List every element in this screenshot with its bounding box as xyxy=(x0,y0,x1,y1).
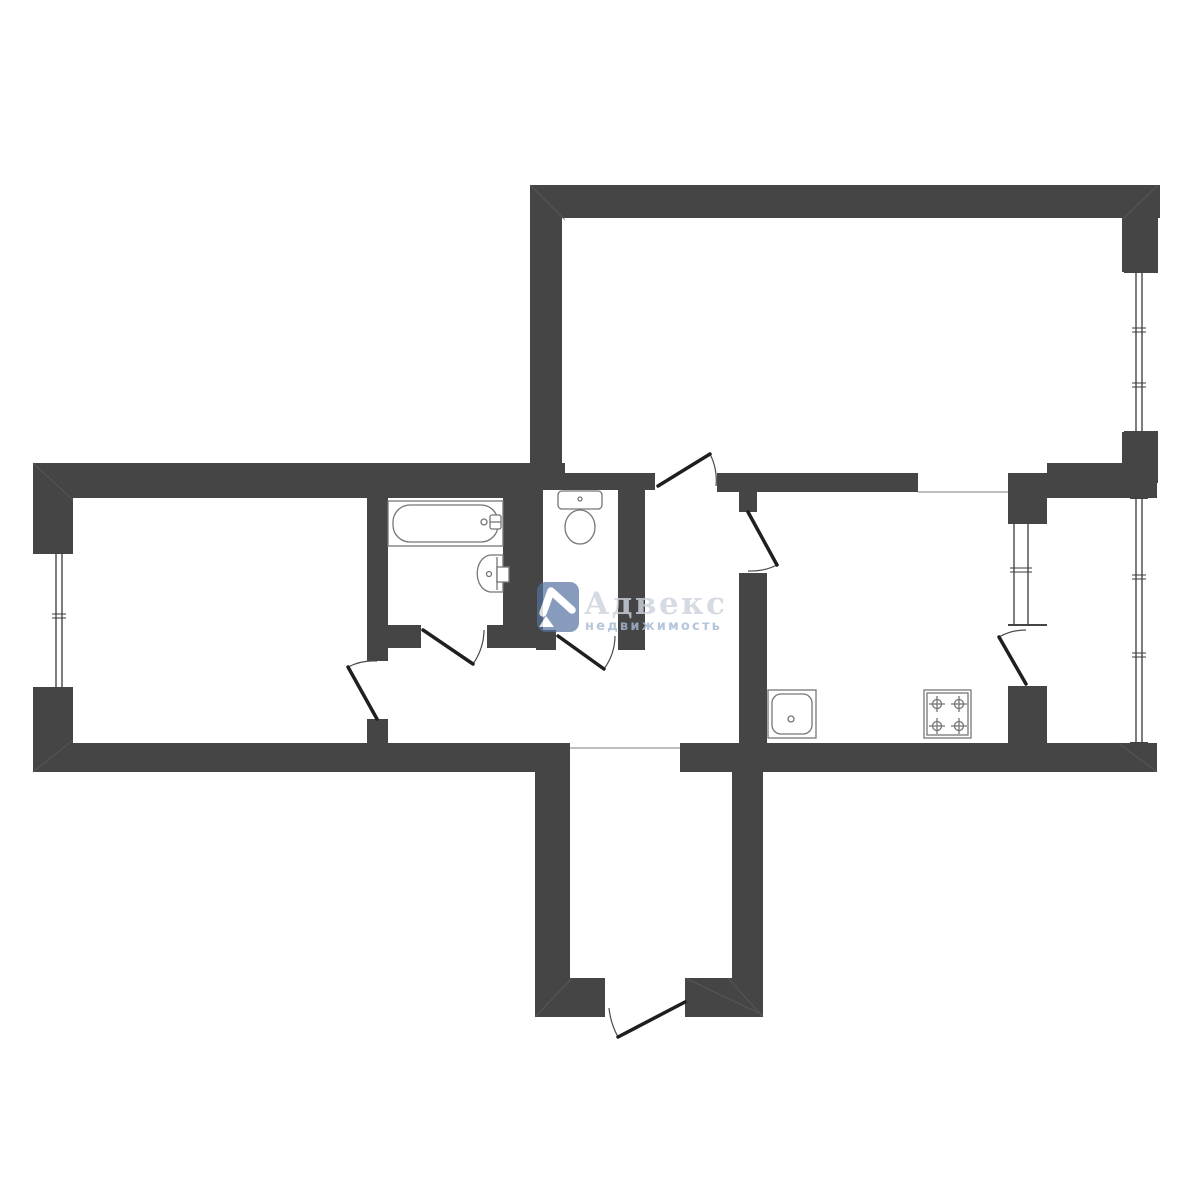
living-room-window-opening xyxy=(1124,272,1158,432)
bathroom-bottom-wall-right xyxy=(487,625,503,648)
bedroom-right-wall-lower xyxy=(367,719,388,743)
watermark-brand: Адвекс xyxy=(584,586,727,622)
left-wing-bottom-wall xyxy=(33,743,570,772)
kitchen-sink-detail xyxy=(788,716,794,722)
bathroom-sink-outline xyxy=(497,567,509,582)
kitchen-sink-outline xyxy=(772,694,812,734)
living-room-right-wall-above-window xyxy=(1122,185,1158,272)
left-wing-top-wall xyxy=(33,463,543,498)
kitchen-balcony-bottom-wall xyxy=(680,743,1157,772)
bathroom-bottom-wall-left xyxy=(388,625,421,648)
bedroom-window-opening xyxy=(33,553,73,688)
bedroom-window xyxy=(33,553,73,688)
living-room-left-wall xyxy=(530,185,562,490)
bathroom-sink-detail xyxy=(487,572,492,577)
kitchen-window xyxy=(1008,523,1047,625)
bathtub xyxy=(388,501,503,546)
stove xyxy=(924,690,971,738)
balcony-window-opening xyxy=(1130,498,1148,743)
wc-bottom-wall-left xyxy=(536,630,556,650)
bedroom-left-wall-above-window xyxy=(33,463,73,553)
kitchen-right-wall-bottom-block xyxy=(1008,686,1047,743)
bedroom-right-wall-upper xyxy=(367,494,388,661)
living-room-bottom-wall-left xyxy=(562,473,655,490)
kitchen-right-wall-top-block xyxy=(1008,473,1047,523)
kitchen-left-wall-lower xyxy=(739,573,767,743)
living-room-top-wall xyxy=(530,185,1160,218)
vestibule-bottom-wall-left xyxy=(535,978,605,1017)
kitchen-door-post xyxy=(739,473,757,512)
watermark: Адвекс недвижимость xyxy=(537,582,727,634)
balcony-window xyxy=(1130,498,1148,743)
kitchen-sink xyxy=(768,690,816,738)
living-room-window xyxy=(1124,272,1158,432)
toilet-detail xyxy=(578,497,582,501)
wc-top-junction xyxy=(543,463,565,488)
floor-plan: Адвекс недвижимость xyxy=(0,0,1200,1200)
bathtub-detail xyxy=(481,519,487,525)
toilet-bowl xyxy=(565,510,595,544)
balcony-top-wall xyxy=(1047,463,1157,498)
watermark-subtitle: недвижимость xyxy=(585,619,722,634)
